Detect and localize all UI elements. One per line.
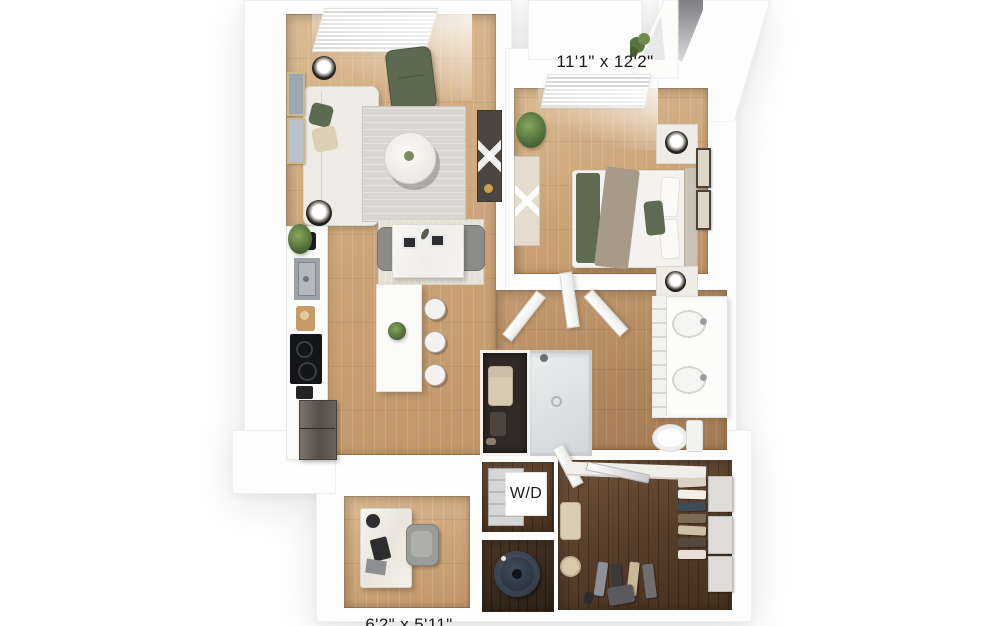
sofa-pillow-beige [311, 125, 339, 153]
closet-suitcase [560, 502, 581, 540]
burner-1 [296, 341, 313, 358]
kitchen-window-plant [288, 224, 312, 254]
linen-bag [490, 412, 506, 436]
vanity-faucet-2 [700, 374, 707, 381]
placemat-2 [430, 234, 445, 247]
vanity-faucet-1 [700, 318, 707, 325]
bedroom-dimensions-label: 11'1" x 12'2" [505, 52, 705, 72]
toilet-tank [686, 420, 703, 452]
storage-box-3 [708, 556, 733, 592]
office-chair-seat [411, 531, 432, 557]
island-stool-2 [424, 331, 446, 353]
island-stool-3 [424, 364, 446, 386]
shower-drain [551, 396, 562, 407]
closet-hat [560, 556, 581, 577]
toilet-bowl [652, 424, 688, 452]
sink-faucet [303, 276, 309, 282]
hanging-garment-4 [678, 514, 706, 523]
stand-mixer [296, 386, 313, 399]
coffee-table-decor [404, 151, 414, 161]
linen-shoes [486, 438, 496, 445]
bedroom-dresser [514, 156, 540, 246]
vanity-shelf-column [652, 296, 667, 416]
refrigerator-gap [299, 428, 335, 429]
island-plant [388, 322, 406, 340]
water-heater-valve [501, 556, 506, 561]
water-heater-cap [512, 569, 522, 579]
wall-mass-balcony [528, 0, 642, 60]
wall-art-bedroom-2 [696, 190, 711, 230]
storage-box-2 [708, 516, 733, 554]
refrigerator [299, 400, 337, 460]
living-room-window [312, 8, 439, 52]
nightstand-lamp-south [665, 271, 686, 292]
burner-2 [298, 362, 317, 381]
floor-lamp-south [306, 200, 332, 226]
storage-box-1 [708, 476, 733, 512]
floor-lamp-north [312, 56, 336, 80]
hanging-garment-7 [678, 550, 706, 559]
nightstand-lamp-north [665, 131, 688, 154]
island-stool-1 [424, 298, 446, 320]
linen-suitcase [488, 366, 513, 406]
accent-chair [384, 45, 437, 112]
wall-art-living-2 [287, 118, 305, 164]
desk-lamp [366, 514, 380, 528]
bed-pillow-olive [643, 200, 665, 236]
wall-art-living-1 [287, 72, 305, 116]
washer-dryer-label: W/D [505, 472, 547, 516]
office-dimensions-label: 6'2" x 5'11" [324, 615, 494, 626]
hanging-garment-2 [678, 490, 706, 500]
bread-loaf [300, 311, 309, 320]
shower-head [540, 354, 548, 362]
desk-papers [365, 559, 387, 576]
hanging-garment-3 [678, 502, 706, 512]
hanging-garment-6 [678, 538, 706, 548]
bedroom-plant [516, 112, 546, 148]
wall-art-bedroom-1 [696, 148, 711, 188]
floor-plan-image: W/D 11'1" x 12'2" 6'2" x 5'11" [0, 0, 998, 626]
hanging-garment-1 [678, 477, 706, 487]
bedroom-window [540, 74, 651, 108]
tv-console-decor [484, 184, 493, 193]
hanging-garment-5 [678, 525, 706, 535]
placemat-1 [402, 236, 417, 249]
